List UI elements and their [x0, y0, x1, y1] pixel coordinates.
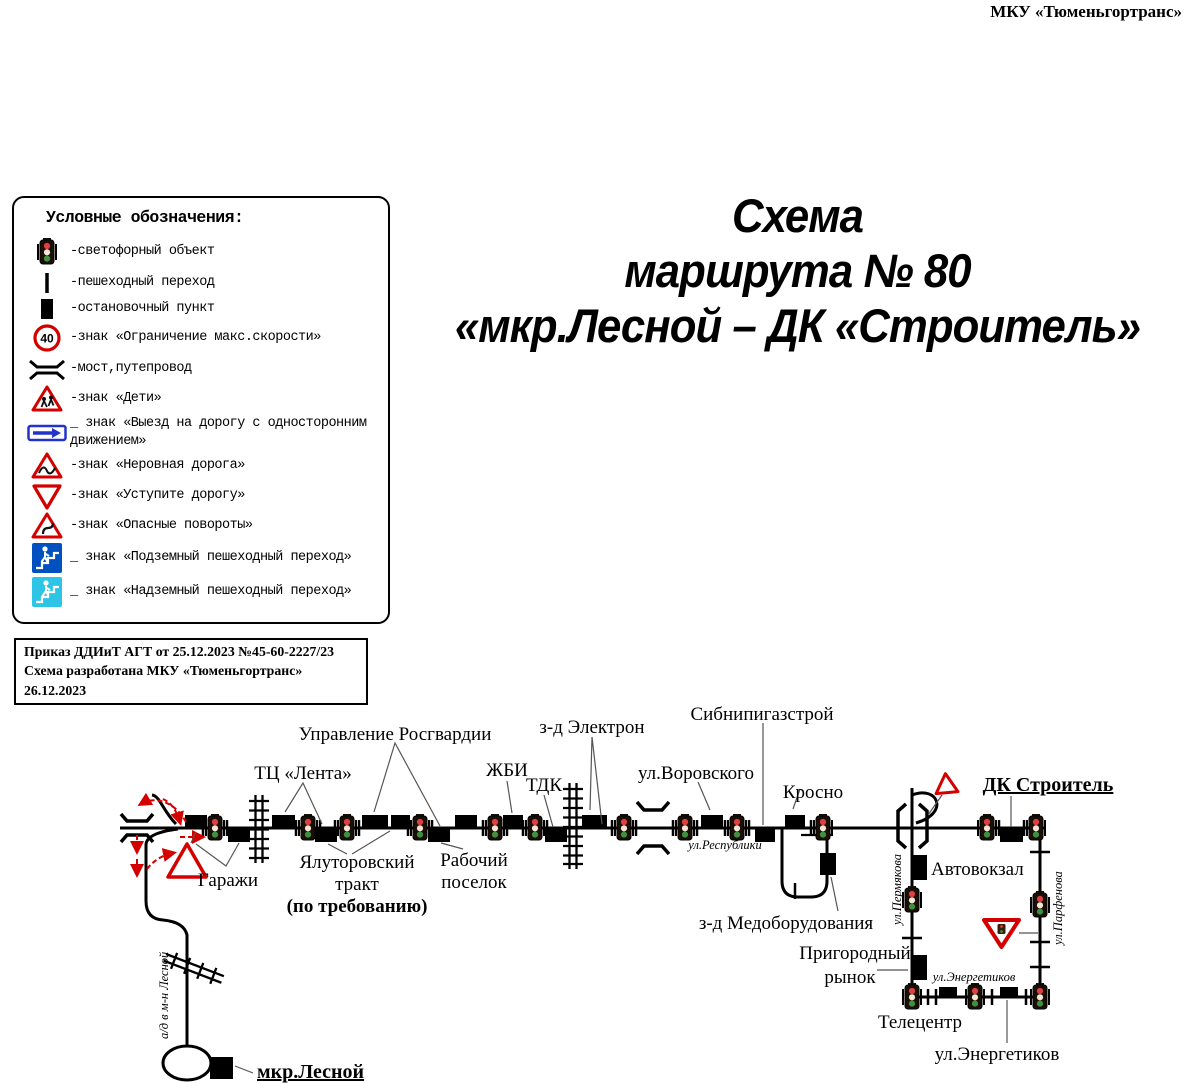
stop-label-zd-elektron: з-д Электрон: [539, 717, 644, 738]
stop-label-garazhi: Гаражи: [198, 870, 258, 891]
bus-stop-icon: [210, 1057, 233, 1079]
street-label-ad-lesnoy: а/д в м-н Лесной: [157, 951, 171, 1039]
traffic-light-icon: [978, 814, 996, 840]
legend-item-give-way: -знак «Уступите дорогу»: [24, 482, 382, 510]
stop-label-upravlenie-rosgvardii: Управление Росгвардии: [299, 724, 492, 745]
stop-label-tdk: ТДК: [526, 775, 562, 796]
bridge-icon: [919, 804, 927, 848]
traffic-light-icon: [814, 814, 832, 840]
bridge-icon: [121, 814, 153, 821]
overground-crossing-sign-icon: [24, 576, 70, 608]
legend-item-children: -знак «Дети»: [24, 385, 382, 413]
terminal-label-mkr-lesnoy: мкр.Лесной: [257, 1061, 364, 1083]
bus-stop-icon: [1000, 829, 1023, 842]
bus-stop-icon: [362, 815, 388, 828]
stop-label-prigorodny-line2: рынок: [824, 967, 876, 988]
bus-stop-icon: [785, 815, 805, 828]
children-sign-icon: [24, 385, 70, 413]
traffic-light-icon: [676, 814, 694, 840]
give-way-sign-icon: [24, 482, 70, 510]
organization-header: МКУ «Тюменьгортранс»: [990, 2, 1182, 22]
bridge-icon: [637, 802, 669, 810]
street-label-ul-energetikov: ул.Энергетиков: [931, 970, 1016, 984]
legend-box: Условные обозначения: -светофорный объек…: [12, 196, 390, 624]
bridge-icon: [637, 846, 669, 854]
stop-labels: Управление Росгвардии ТЦ «Лента» ЖБИ ТДК…: [198, 704, 1059, 1065]
traffic-light-icon: [486, 814, 504, 840]
bus-stop-icon: [820, 853, 836, 875]
legend-item-pedestrian-crossing: -пешеходный переход: [24, 271, 382, 295]
street-label-ul-parfyonova: ул.Парфенова: [1051, 871, 1065, 947]
stop-label-rabochiy-line2: поселок: [441, 872, 507, 893]
legend-item-underground-crossing: _ знак «Подземный пешеходный переход»: [24, 542, 382, 574]
svg-text:40: 40: [40, 332, 54, 346]
railroad-crossing-icon: [249, 795, 269, 863]
stop-label-ul-energetikov: ул.Энергетиков: [935, 1044, 1060, 1065]
lesnoy-turn-loop: [163, 1046, 211, 1080]
traffic-light-icon: [411, 814, 429, 840]
roads: [120, 788, 1045, 1080]
street-label-ul-respubliki: ул.Республики: [686, 838, 761, 852]
traffic-light-icon: [338, 814, 356, 840]
traffic-light-icon: [966, 983, 984, 1009]
stop-label-krosno: Кросно: [783, 782, 843, 803]
title-line-3: «мкр.Лесной – ДК «Строитель»: [428, 298, 1167, 353]
traffic-light-icon: [615, 814, 633, 840]
bus-stop-icon: [315, 829, 337, 842]
bus-stop-icon: [545, 829, 567, 842]
street-label-ul-permyakova: ул.Пермякова: [890, 854, 904, 927]
traffic-light-icon: [1031, 891, 1049, 917]
bus-stop-icon: [939, 987, 957, 997]
legend-item-speed-limit: 40 -знак «Ограничение макс.скорости»: [24, 323, 382, 353]
route-map: Управление Росгвардии ТЦ «Лента» ЖБИ ТДК…: [0, 683, 1200, 1083]
terminal-label-dk-stroitel: ДК Строитель: [983, 774, 1114, 796]
bus-stop-icon: [1000, 987, 1018, 997]
legend-item-bus-stop: -остановочный пункт: [24, 297, 382, 321]
order-line-1: Приказ ДДИиТ АГТ от 25.12.2023 №45-60-22…: [24, 642, 360, 661]
railroad-crossing-icon: [563, 783, 583, 869]
stop-label-sibnipigazstroy: Сибнипигазстрой: [690, 704, 833, 725]
traffic-light-icon: [1027, 814, 1045, 840]
legend-item-one-way: _ знак «Выезд на дорогу с односторонним …: [24, 415, 382, 450]
bus-stop-icon: [701, 815, 723, 828]
stop-label-yalutorovskiy-line2: тракт: [335, 874, 379, 895]
traffic-light-icon: [24, 235, 70, 269]
bus-stop-icon: [228, 829, 250, 842]
bridge-icon: [898, 804, 906, 848]
title-line-1: Схема: [428, 188, 1167, 243]
one-way-road-sign-icon: [24, 423, 70, 443]
route-scheme-page: МКУ «Тюменьгортранс» Условные обозначени…: [0, 0, 1200, 1083]
bus-stop-icon: [455, 815, 477, 828]
stop-label-zd-medoborudovaniya: з-д Медоборудования: [699, 913, 874, 934]
title-line-2: маршрута № 80: [428, 243, 1167, 298]
legend-item-bridge: -мост,путепровод: [24, 355, 382, 383]
scheme-title: Схема маршрута № 80 «мкр.Лесной – ДК «Ст…: [400, 188, 1195, 353]
speed-limit-40-icon: 40: [24, 323, 70, 353]
traffic-light-icon: [903, 886, 921, 912]
legend-item-traffic-light: -светофорный объект: [24, 235, 382, 269]
traffic-light-icon: [903, 983, 921, 1009]
bus-stop-icon: [24, 297, 70, 321]
stop-label-avtovokzal: Автовокзал: [931, 859, 1024, 880]
bus-stop-icon: [912, 855, 927, 880]
stop-label-zhbi: ЖБИ: [486, 760, 528, 781]
bus-stop-icon: [912, 955, 927, 980]
stop-label-prigorodny-line1: Пригородный: [799, 943, 910, 964]
stop-label-ul-vorovskogo: ул.Воровского: [638, 763, 754, 784]
stop-label-yalutorovskiy-line1: Ялуторовский: [299, 852, 414, 873]
traffic-light-icon: [1031, 983, 1049, 1009]
legend-title: Условные обозначения:: [46, 208, 382, 227]
pedestrian-crossing-icon: [24, 271, 70, 295]
legend-item-rough-road: -знак «Неровная дорога»: [24, 452, 382, 480]
traffic-light-icon: [728, 814, 746, 840]
traffic-light-icon: [299, 814, 317, 840]
stop-label-rabochiy-line1: Рабочий: [440, 850, 508, 871]
traffic-light-icon: [206, 814, 224, 840]
legend-item-dangerous-turns: -знак «Опасные повороты»: [24, 512, 382, 540]
railroad-crossing-icon: [162, 949, 226, 987]
traffic-light-icon: [526, 814, 544, 840]
stop-label-tc-lenta: ТЦ «Лента»: [254, 763, 351, 784]
underground-crossing-sign-icon: [24, 542, 70, 574]
street-labels: ул.Республики ул.Энергетиков ул.Пермяков…: [157, 838, 1065, 1039]
bus-stop-icon: [582, 815, 607, 828]
rough-road-sign-icon: [24, 452, 70, 480]
dangerous-turns-sign-icon: [24, 512, 70, 540]
stop-label-teletsentr: Телецентр: [878, 1012, 962, 1033]
legend-item-overground-crossing: _ знак «Надземный пешеходный переход»: [24, 576, 382, 608]
bus-stop-icon: [272, 815, 295, 828]
stop-label-yalutorovskiy-line3: (по требованию): [287, 896, 428, 917]
bridge-icon: [24, 355, 70, 383]
